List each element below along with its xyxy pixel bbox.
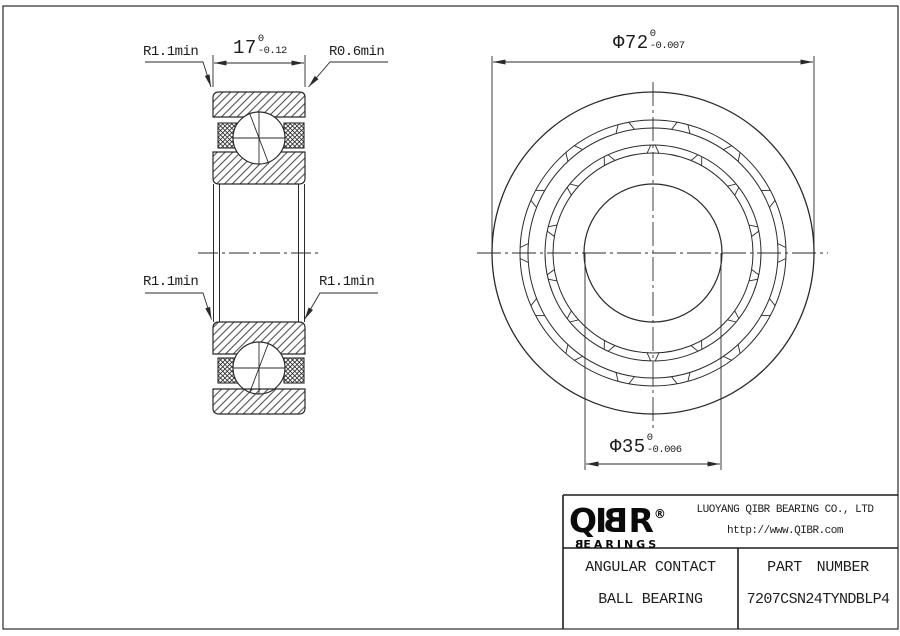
- bore-surface-lines: [214, 184, 305, 322]
- leader-top-left: [145, 62, 211, 87]
- width-dimension: [213, 55, 305, 87]
- width-tol-upper: 0: [258, 33, 287, 45]
- product-name-line1: ANGULAR CONTACT: [563, 558, 738, 578]
- part-number-cell: PART NUMBER 7207CSN24TYNDBLP4: [738, 558, 898, 610]
- leader-mid-left: [145, 293, 212, 320]
- chamfer-label-top-left: R1.1min: [143, 44, 198, 60]
- logo-wordmark: QIBR®: [569, 499, 666, 536]
- company-website: http://www.QIBR.com: [674, 521, 896, 542]
- od-tol-upper: 0: [650, 28, 685, 40]
- section-view: [145, 55, 388, 414]
- width-value: 17: [233, 38, 257, 58]
- ball-top: [233, 112, 285, 164]
- part-number-value: 7207CSN24TYNDBLP4: [738, 590, 898, 610]
- leader-mid-right: [305, 293, 379, 320]
- product-name-cell: ANGULAR CONTACT BALL BEARING: [563, 558, 738, 610]
- ball-bottom: [233, 342, 285, 394]
- front-view: [477, 56, 828, 470]
- od-value: Φ72: [613, 33, 649, 53]
- chamfer-label-top-right: R0.6min: [329, 44, 384, 60]
- od-tol-lower: -0.007: [650, 40, 685, 52]
- registered-trademark-icon: ®: [654, 507, 666, 521]
- cage-section-bottom-right: [284, 358, 304, 383]
- width-tol-lower: -0.12: [258, 45, 287, 57]
- company-logo: QIBR® BEARINGS: [569, 499, 666, 551]
- cage-section-top-right: [284, 123, 304, 148]
- part-number-label: PART NUMBER: [738, 558, 898, 578]
- leader-top-right: [309, 62, 389, 87]
- chamfer-label-mid-right: R1.1min: [319, 274, 374, 290]
- chamfer-label-mid-left: R1.1min: [143, 274, 198, 290]
- outer-diameter-text: Φ72 0 -0.007: [613, 33, 685, 53]
- product-name-line2: BALL BEARING: [563, 590, 738, 610]
- company-name: LUOYANG QIBR BEARING CO., LTD: [674, 500, 896, 521]
- bore-value: Φ35: [610, 437, 646, 457]
- bore-tol-lower: -0.006: [647, 444, 682, 456]
- bore-diameter-text: Φ35 0 -0.006: [610, 437, 682, 457]
- width-dimension-text: 17 0 -0.12: [233, 38, 287, 58]
- outer-ring-section-bottom: [213, 389, 305, 414]
- company-info: LUOYANG QIBR BEARING CO., LTD http://www…: [674, 500, 896, 542]
- bore-tol-upper: 0: [647, 432, 682, 444]
- bearing-drawing-sheet: R1.1min R0.6min R1.1min R1.1min 17 0 -0.…: [0, 0, 900, 636]
